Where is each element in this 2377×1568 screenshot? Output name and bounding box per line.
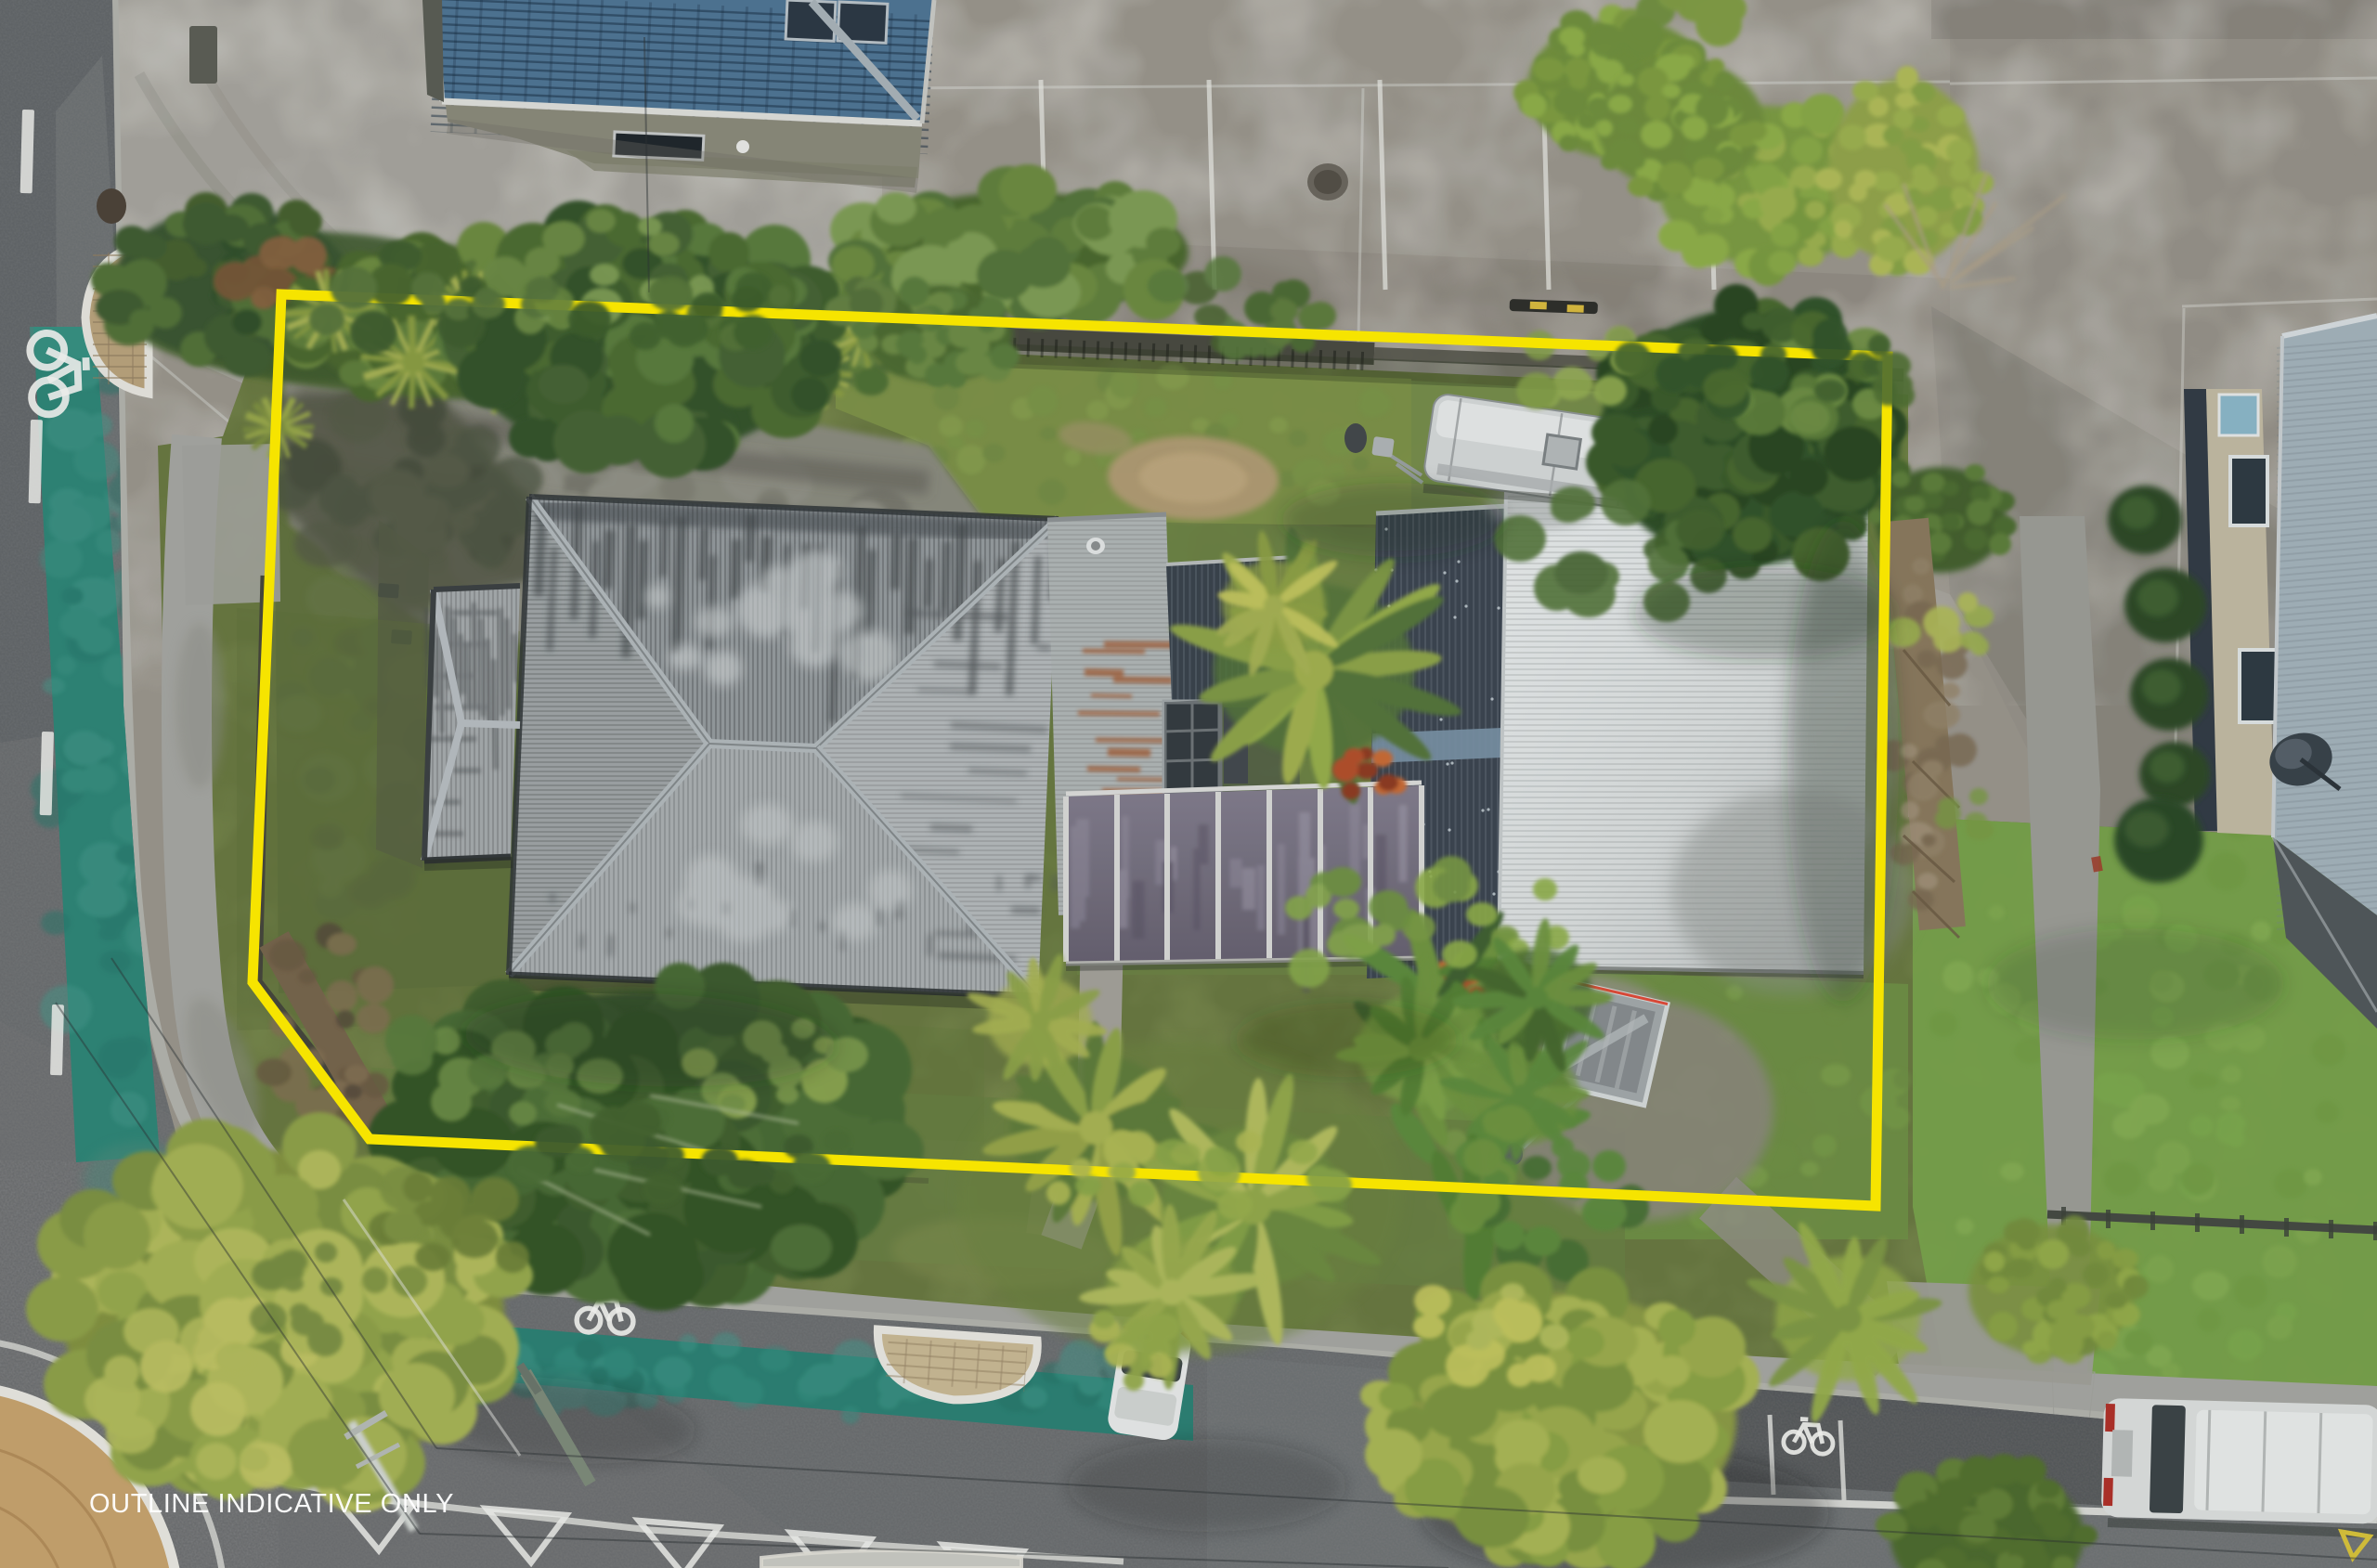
svg-text:OUTLINE INDICATIVE ONLY: OUTLINE INDICATIVE ONLY xyxy=(89,1489,454,1519)
